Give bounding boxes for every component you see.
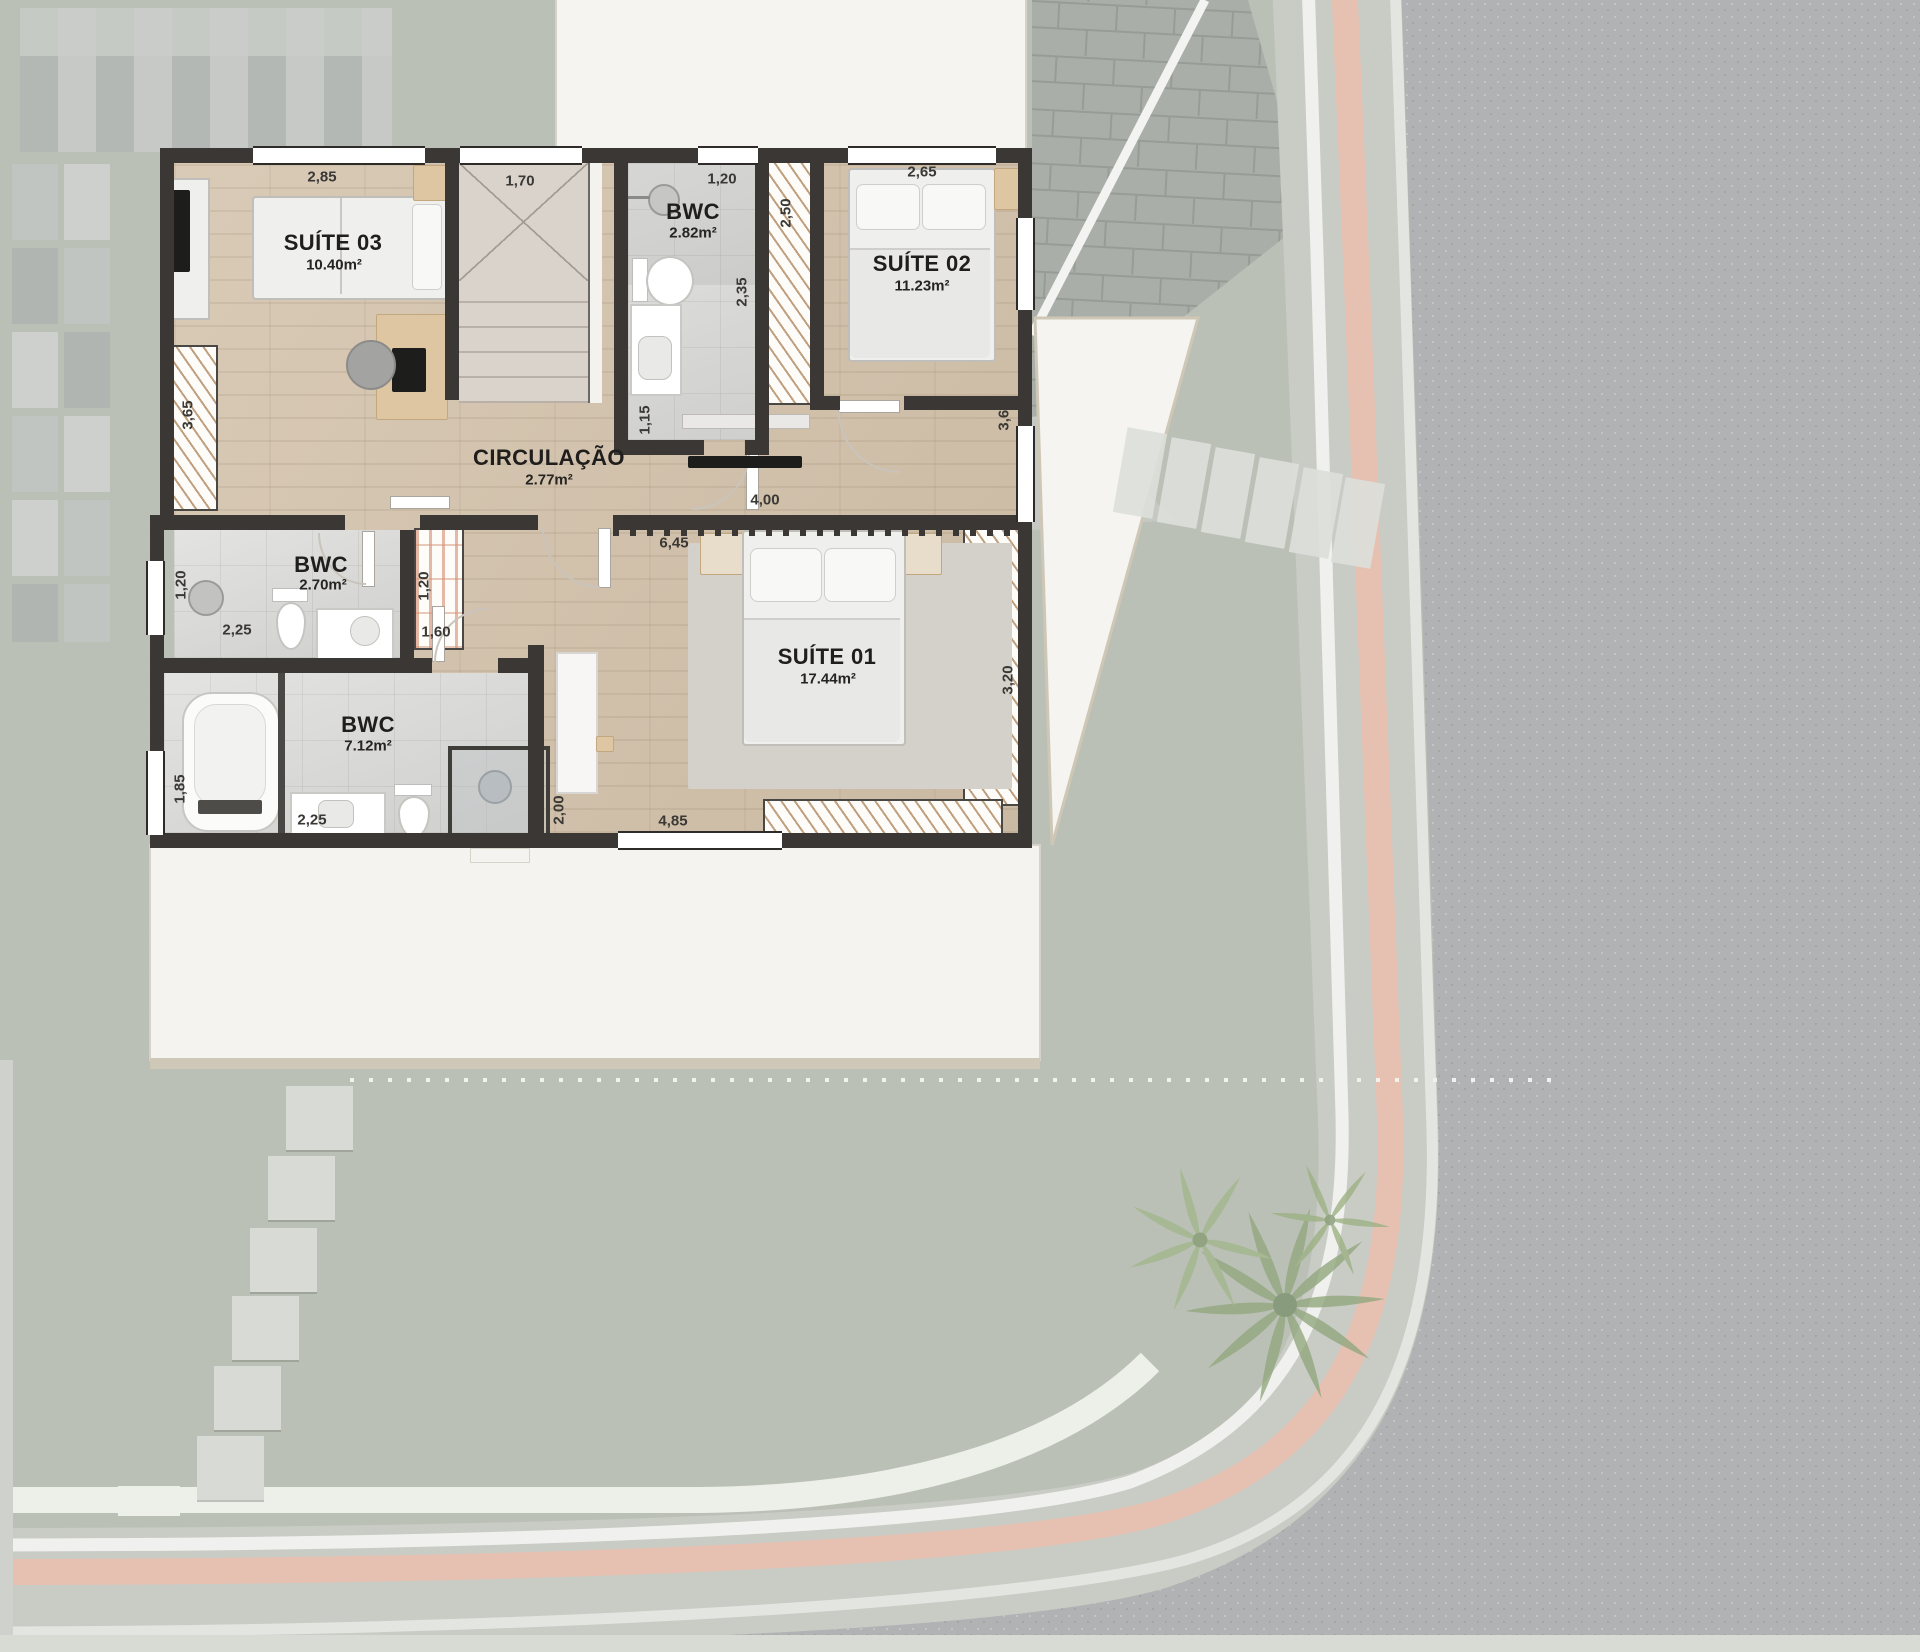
dim-bwc-suite01-window: 1,85 xyxy=(172,774,189,803)
dim-hall-right: 4,00 xyxy=(750,492,779,509)
exterior-step xyxy=(470,848,530,863)
window-suite01-right xyxy=(1016,426,1035,522)
window-suite02 xyxy=(848,146,996,165)
wall-left-upper xyxy=(160,148,174,530)
window-bwc-mid xyxy=(146,561,165,635)
dim-closet-suite02: 2,50 xyxy=(778,198,795,227)
dim-bwc-top-depth: 2,35 xyxy=(734,277,751,306)
window-suite03 xyxy=(253,146,425,165)
paver-strip-top-left xyxy=(20,8,392,152)
room-title-suite03: SUÍTE 03 xyxy=(284,230,383,256)
stepping-stone xyxy=(286,1086,353,1150)
roof-top xyxy=(556,0,1026,152)
dim-suite01-bottom: 4,85 xyxy=(658,813,687,830)
ground-tile xyxy=(64,416,110,492)
wall-bwcmid-right xyxy=(400,530,414,658)
dim-stairs-top: 1,70 xyxy=(505,173,534,190)
ground-tile xyxy=(12,248,58,324)
stepping-stone xyxy=(214,1366,281,1430)
room-title-circulacao: CIRCULAÇÃO xyxy=(473,445,625,471)
stepping-stone xyxy=(197,1436,264,1500)
nightstand-suite03 xyxy=(413,165,447,201)
tv-hall xyxy=(688,456,802,468)
ground-tile xyxy=(64,584,110,642)
shower-head-bwc-mid xyxy=(188,580,224,616)
room-area-circulacao: 2.77m² xyxy=(525,472,573,489)
stairs-steps xyxy=(459,281,588,403)
room-area-bwc-top: 2.82m² xyxy=(669,225,717,242)
pillow-right-suite01 xyxy=(824,548,896,602)
stepping-stone xyxy=(232,1296,299,1360)
ground-tile xyxy=(64,332,110,408)
room-title-suite02: SUÍTE 02 xyxy=(873,251,972,277)
dim-suite01-door-side: 2,00 xyxy=(551,795,568,824)
dim-bwc-top-width: 1,20 xyxy=(707,171,736,188)
bottom-pavement-strip xyxy=(0,1635,1920,1652)
shower-drain xyxy=(478,770,512,804)
ground-tile xyxy=(12,584,58,642)
pillow-suite03 xyxy=(412,204,442,290)
nightstand-left-suite01 xyxy=(700,533,744,575)
wall-bwc-right xyxy=(755,148,769,455)
room-area-suite02: 11.23m² xyxy=(894,278,949,295)
roof-terrace xyxy=(150,845,1040,1060)
room-title-bwc-suite01: BWC xyxy=(341,712,395,738)
ground-tile xyxy=(12,332,58,408)
cabinet-suite01 xyxy=(556,652,598,794)
wall-mid-c xyxy=(613,515,1032,530)
door-leaf-suite03 xyxy=(390,496,450,509)
wall-bwc-suite01-top-a xyxy=(150,658,432,673)
dim-suite01-closet: 3,20 xyxy=(1000,665,1017,694)
basin-bwc-top xyxy=(638,336,672,380)
console-hall xyxy=(682,414,810,429)
pillow-left-suite01 xyxy=(750,548,822,602)
wall-bwc-suite01-top-b xyxy=(498,658,544,673)
dim-bwc-top-door: 1,15 xyxy=(637,405,654,434)
room-title-bwc-mid: BWC xyxy=(294,552,348,578)
wall-mid-b xyxy=(420,515,538,530)
toilet-tank-bwc-suite01 xyxy=(394,784,432,796)
stepping-stone xyxy=(268,1156,335,1220)
window-suite01-bottom xyxy=(618,831,782,850)
bath-tray xyxy=(198,800,262,814)
ground-tile xyxy=(12,416,58,492)
doorstep xyxy=(118,1486,180,1516)
dim-suite03-top: 2,85 xyxy=(307,169,336,186)
wall-suite02-bottom-b xyxy=(904,396,1032,410)
shower-arm-bwc-top xyxy=(626,196,650,199)
window-bwc-top xyxy=(698,146,758,165)
ground-tile xyxy=(64,500,110,576)
ground-tile xyxy=(12,164,58,240)
room-title-suite01: SUÍTE 01 xyxy=(778,644,877,670)
dim-bwc-suite01-width: 2,25 xyxy=(297,812,326,829)
laptop-suite03 xyxy=(392,348,426,392)
window-bwc-suite01 xyxy=(146,751,165,835)
dim-suite03-closet: 3,65 xyxy=(180,400,197,429)
stool-suite01 xyxy=(596,736,614,752)
dim-suite02-side: 3,65 xyxy=(996,401,1013,430)
wall-suite02-bottom-a xyxy=(824,396,840,410)
floor-plan-scene: SUÍTE 03 10.40m² BWC 2.82m² SUÍTE 02 11.… xyxy=(0,0,1920,1652)
wall-suite02-left xyxy=(810,148,824,410)
stepping-stone xyxy=(250,1228,317,1292)
dim-bwc-mid-width: 2,25 xyxy=(222,622,251,639)
nightstand-suite02 xyxy=(994,168,1020,210)
dim-closet-hall-depth: 1,20 xyxy=(416,571,433,600)
room-title-bwc-top: BWC xyxy=(666,199,720,225)
wall-suite03-stairs xyxy=(445,148,459,400)
dim-bwc-mid-window: 1,20 xyxy=(173,570,190,599)
wall-bwc-bottom-b xyxy=(745,440,769,455)
ground-tile xyxy=(64,248,110,324)
left-pavement-strip xyxy=(0,1060,13,1635)
roof-terrace-edge xyxy=(150,1058,1040,1069)
bathtub-inner xyxy=(194,704,266,806)
wall-suite01-left xyxy=(528,645,544,848)
desk-chair-suite03 xyxy=(346,340,396,390)
pillow-right-suite02 xyxy=(922,184,986,230)
room-area-suite03: 10.40m² xyxy=(306,257,362,274)
room-area-suite01: 17.44m² xyxy=(800,671,856,688)
ground-tile xyxy=(12,500,58,576)
wall-stairs-bwc xyxy=(614,148,628,455)
ground-tile xyxy=(64,164,110,240)
dim-closet-hall-width: 1,60 xyxy=(421,624,450,641)
pillow-left-suite02 xyxy=(856,184,920,230)
wall-mid-a xyxy=(160,515,345,530)
toilet-bowl-bwc-top xyxy=(646,256,694,306)
room-area-bwc-mid: 2.70m² xyxy=(299,577,347,594)
partition-bwc-suite01 xyxy=(278,673,285,833)
basin-bwc-mid xyxy=(350,616,380,646)
dim-hall-span: 6,45 xyxy=(659,535,688,552)
window-suite02-right xyxy=(1016,218,1035,310)
dim-suite02-top: 2,65 xyxy=(907,164,936,181)
wall-bwc-bottom-a xyxy=(614,440,704,455)
window-stairs xyxy=(460,146,582,165)
wall-bottom xyxy=(150,833,1032,848)
room-area-bwc-suite01: 7.12m² xyxy=(344,738,392,755)
stairs-railing xyxy=(588,163,602,403)
